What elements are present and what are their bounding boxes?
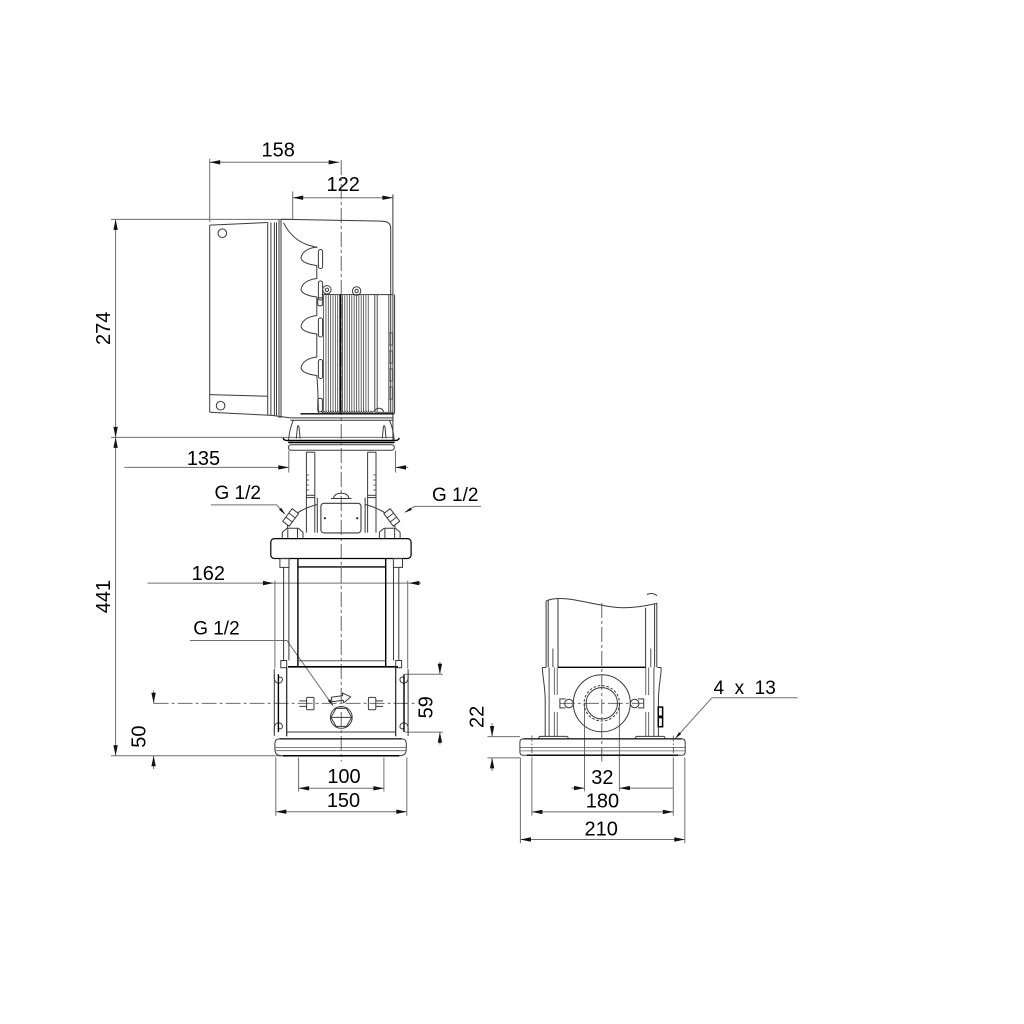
- svg-text:135: 135: [187, 448, 220, 470]
- svg-text:G 1/2: G 1/2: [215, 483, 261, 504]
- svg-text:162: 162: [192, 563, 225, 585]
- svg-text:100: 100: [327, 766, 360, 788]
- svg-text:4 x 13: 4 x 13: [714, 678, 776, 699]
- svg-text:122: 122: [327, 174, 360, 196]
- svg-text:441: 441: [93, 580, 115, 613]
- svg-text:274: 274: [93, 312, 115, 345]
- svg-text:180: 180: [586, 791, 619, 813]
- svg-text:32: 32: [591, 767, 613, 789]
- svg-text:50: 50: [129, 725, 151, 747]
- svg-text:G 1/2: G 1/2: [432, 485, 478, 506]
- svg-text:22: 22: [467, 706, 489, 728]
- svg-text:59: 59: [416, 696, 438, 718]
- svg-text:210: 210: [585, 818, 618, 840]
- svg-text:150: 150: [327, 790, 360, 812]
- svg-text:G 1/2: G 1/2: [193, 618, 239, 639]
- svg-text:158: 158: [262, 140, 295, 162]
